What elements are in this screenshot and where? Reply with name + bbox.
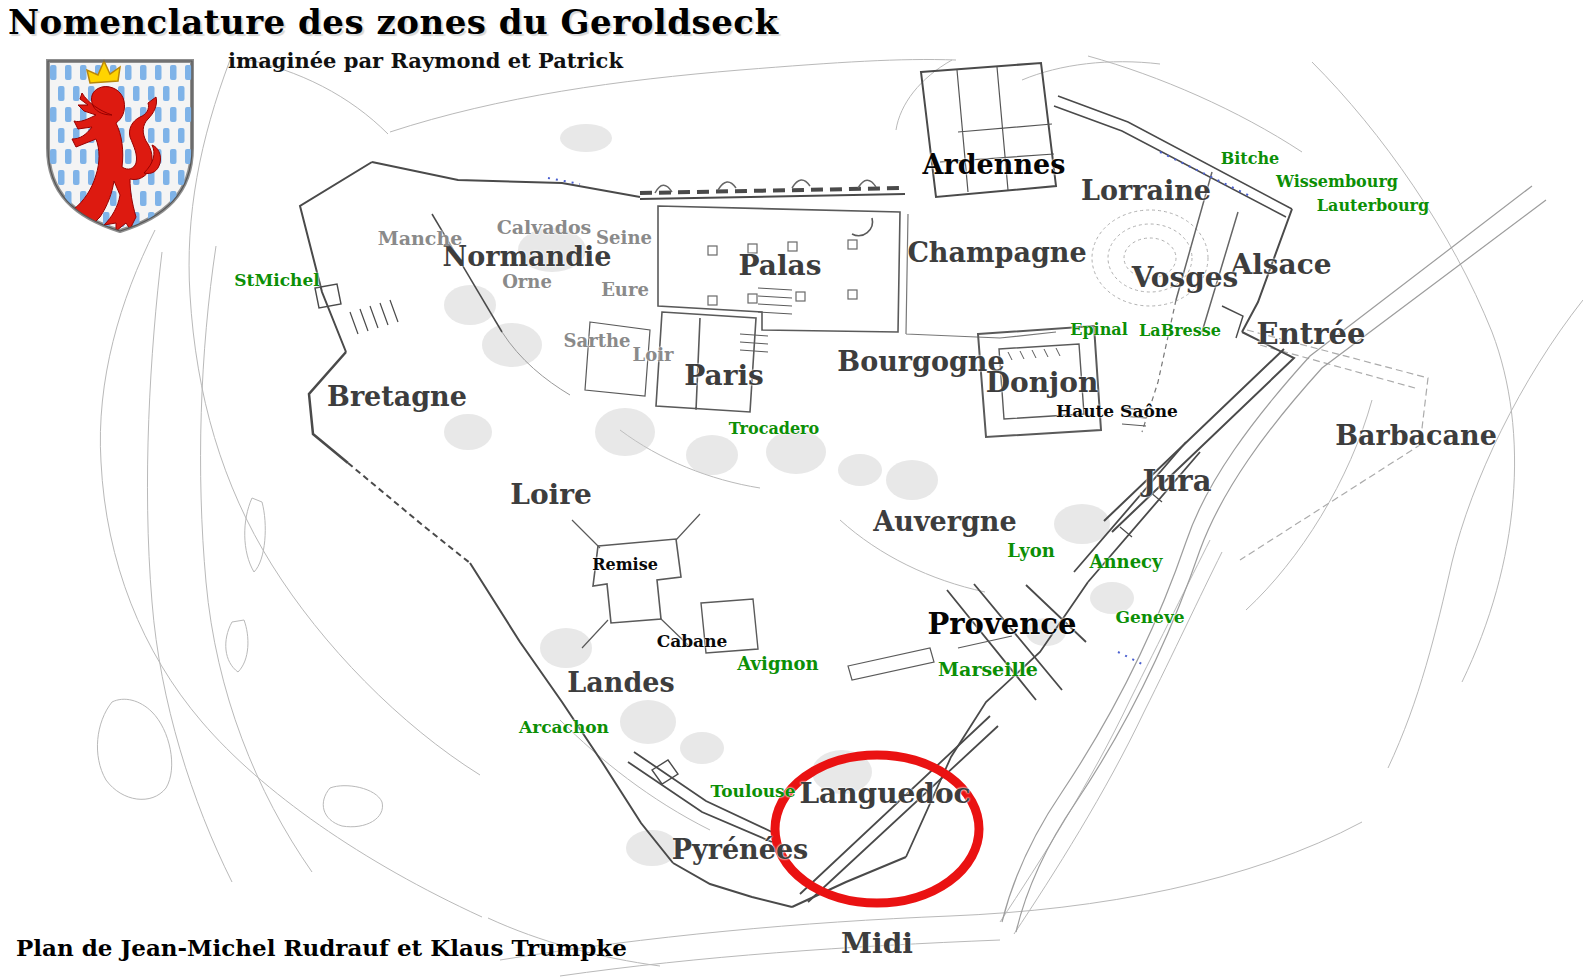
map-label-palas: Palas <box>739 252 822 280</box>
map-label-eure: Eure <box>601 281 649 299</box>
map-label-stmichel: StMichel <box>234 272 319 289</box>
map-label-alsace: Alsace <box>1230 251 1331 279</box>
map-label-bourgogne: Bourgogne <box>837 348 1004 375</box>
map-label-barbacane: Barbacane <box>1335 422 1497 449</box>
map-label-normandie: Normandie <box>443 243 612 270</box>
map-label-lyon: Lyon <box>1007 542 1055 560</box>
map-label-lauterbourg: Lauterbourg <box>1317 198 1429 214</box>
map-label-wissembourg: Wissembourg <box>1276 174 1398 190</box>
map-label-toulouse: Toulouse <box>711 783 796 800</box>
map-label-bitche: Bitche <box>1221 151 1280 167</box>
entrance-road <box>1002 186 1546 932</box>
map-label-loir: Loir <box>633 346 674 364</box>
map-label-auvergne: Auvergne <box>873 508 1016 535</box>
map-label-lorraine: Lorraine <box>1081 177 1211 204</box>
map-label-bretagne: Bretagne <box>327 383 467 410</box>
coat-of-arms <box>40 53 200 238</box>
map-label-vosges: Vosges <box>1132 264 1239 292</box>
map-label-loire: Loire <box>510 481 592 509</box>
map-label-pyrenees: Pyrénées <box>672 836 809 863</box>
map-label-labresse: LaBresse <box>1139 323 1221 339</box>
map-label-paris: Paris <box>684 362 764 390</box>
map-label-geneve: Geneve <box>1115 609 1184 626</box>
map-label-entree: Entrée <box>1257 320 1366 349</box>
castle-plan <box>0 0 1583 978</box>
map-label-ardennes: Ardennes <box>923 151 1066 178</box>
page-subtitle: imaginée par Raymond et Patrick <box>228 48 623 73</box>
map-label-midi: Midi <box>841 930 913 958</box>
map-label-jura: Jura <box>1143 467 1212 496</box>
map-label-remise: Remise <box>592 557 658 573</box>
map-label-orne: Orne <box>502 273 552 291</box>
map-label-arcachon: Arcachon <box>519 719 609 736</box>
plan-credit: Plan de Jean-Michel Rudrauf et Klaus Tru… <box>16 934 627 961</box>
map-label-annecy: Annecy <box>1089 553 1162 571</box>
map-label-champagne: Champagne <box>907 239 1086 266</box>
map-label-calvados: Calvados <box>497 218 592 237</box>
map-label-epinal: Epinal <box>1070 322 1128 338</box>
map-label-sarthe: Sarthe <box>564 332 631 350</box>
map-label-haute-saone: Haute Saône <box>1056 403 1178 420</box>
map-label-landes: Landes <box>567 669 674 696</box>
geroldseck-map-page: { "title": "Nomenclature des zones du Ge… <box>0 0 1583 978</box>
map-label-trocadero: Trocadero <box>729 421 819 437</box>
map-label-cabane: Cabane <box>657 633 728 650</box>
map-label-marseille: Marseille <box>938 660 1038 679</box>
map-label-languedoc: Languedoc <box>799 780 970 808</box>
map-label-donjon: Donjon <box>986 369 1098 397</box>
page-title: Nomenclature des zones du Geroldseck <box>8 2 779 42</box>
map-label-seine: Seine <box>596 229 652 247</box>
map-label-manche: Manche <box>378 229 463 248</box>
map-label-provence: Provence <box>928 610 1077 639</box>
map-label-avignon: Avignon <box>737 655 818 673</box>
